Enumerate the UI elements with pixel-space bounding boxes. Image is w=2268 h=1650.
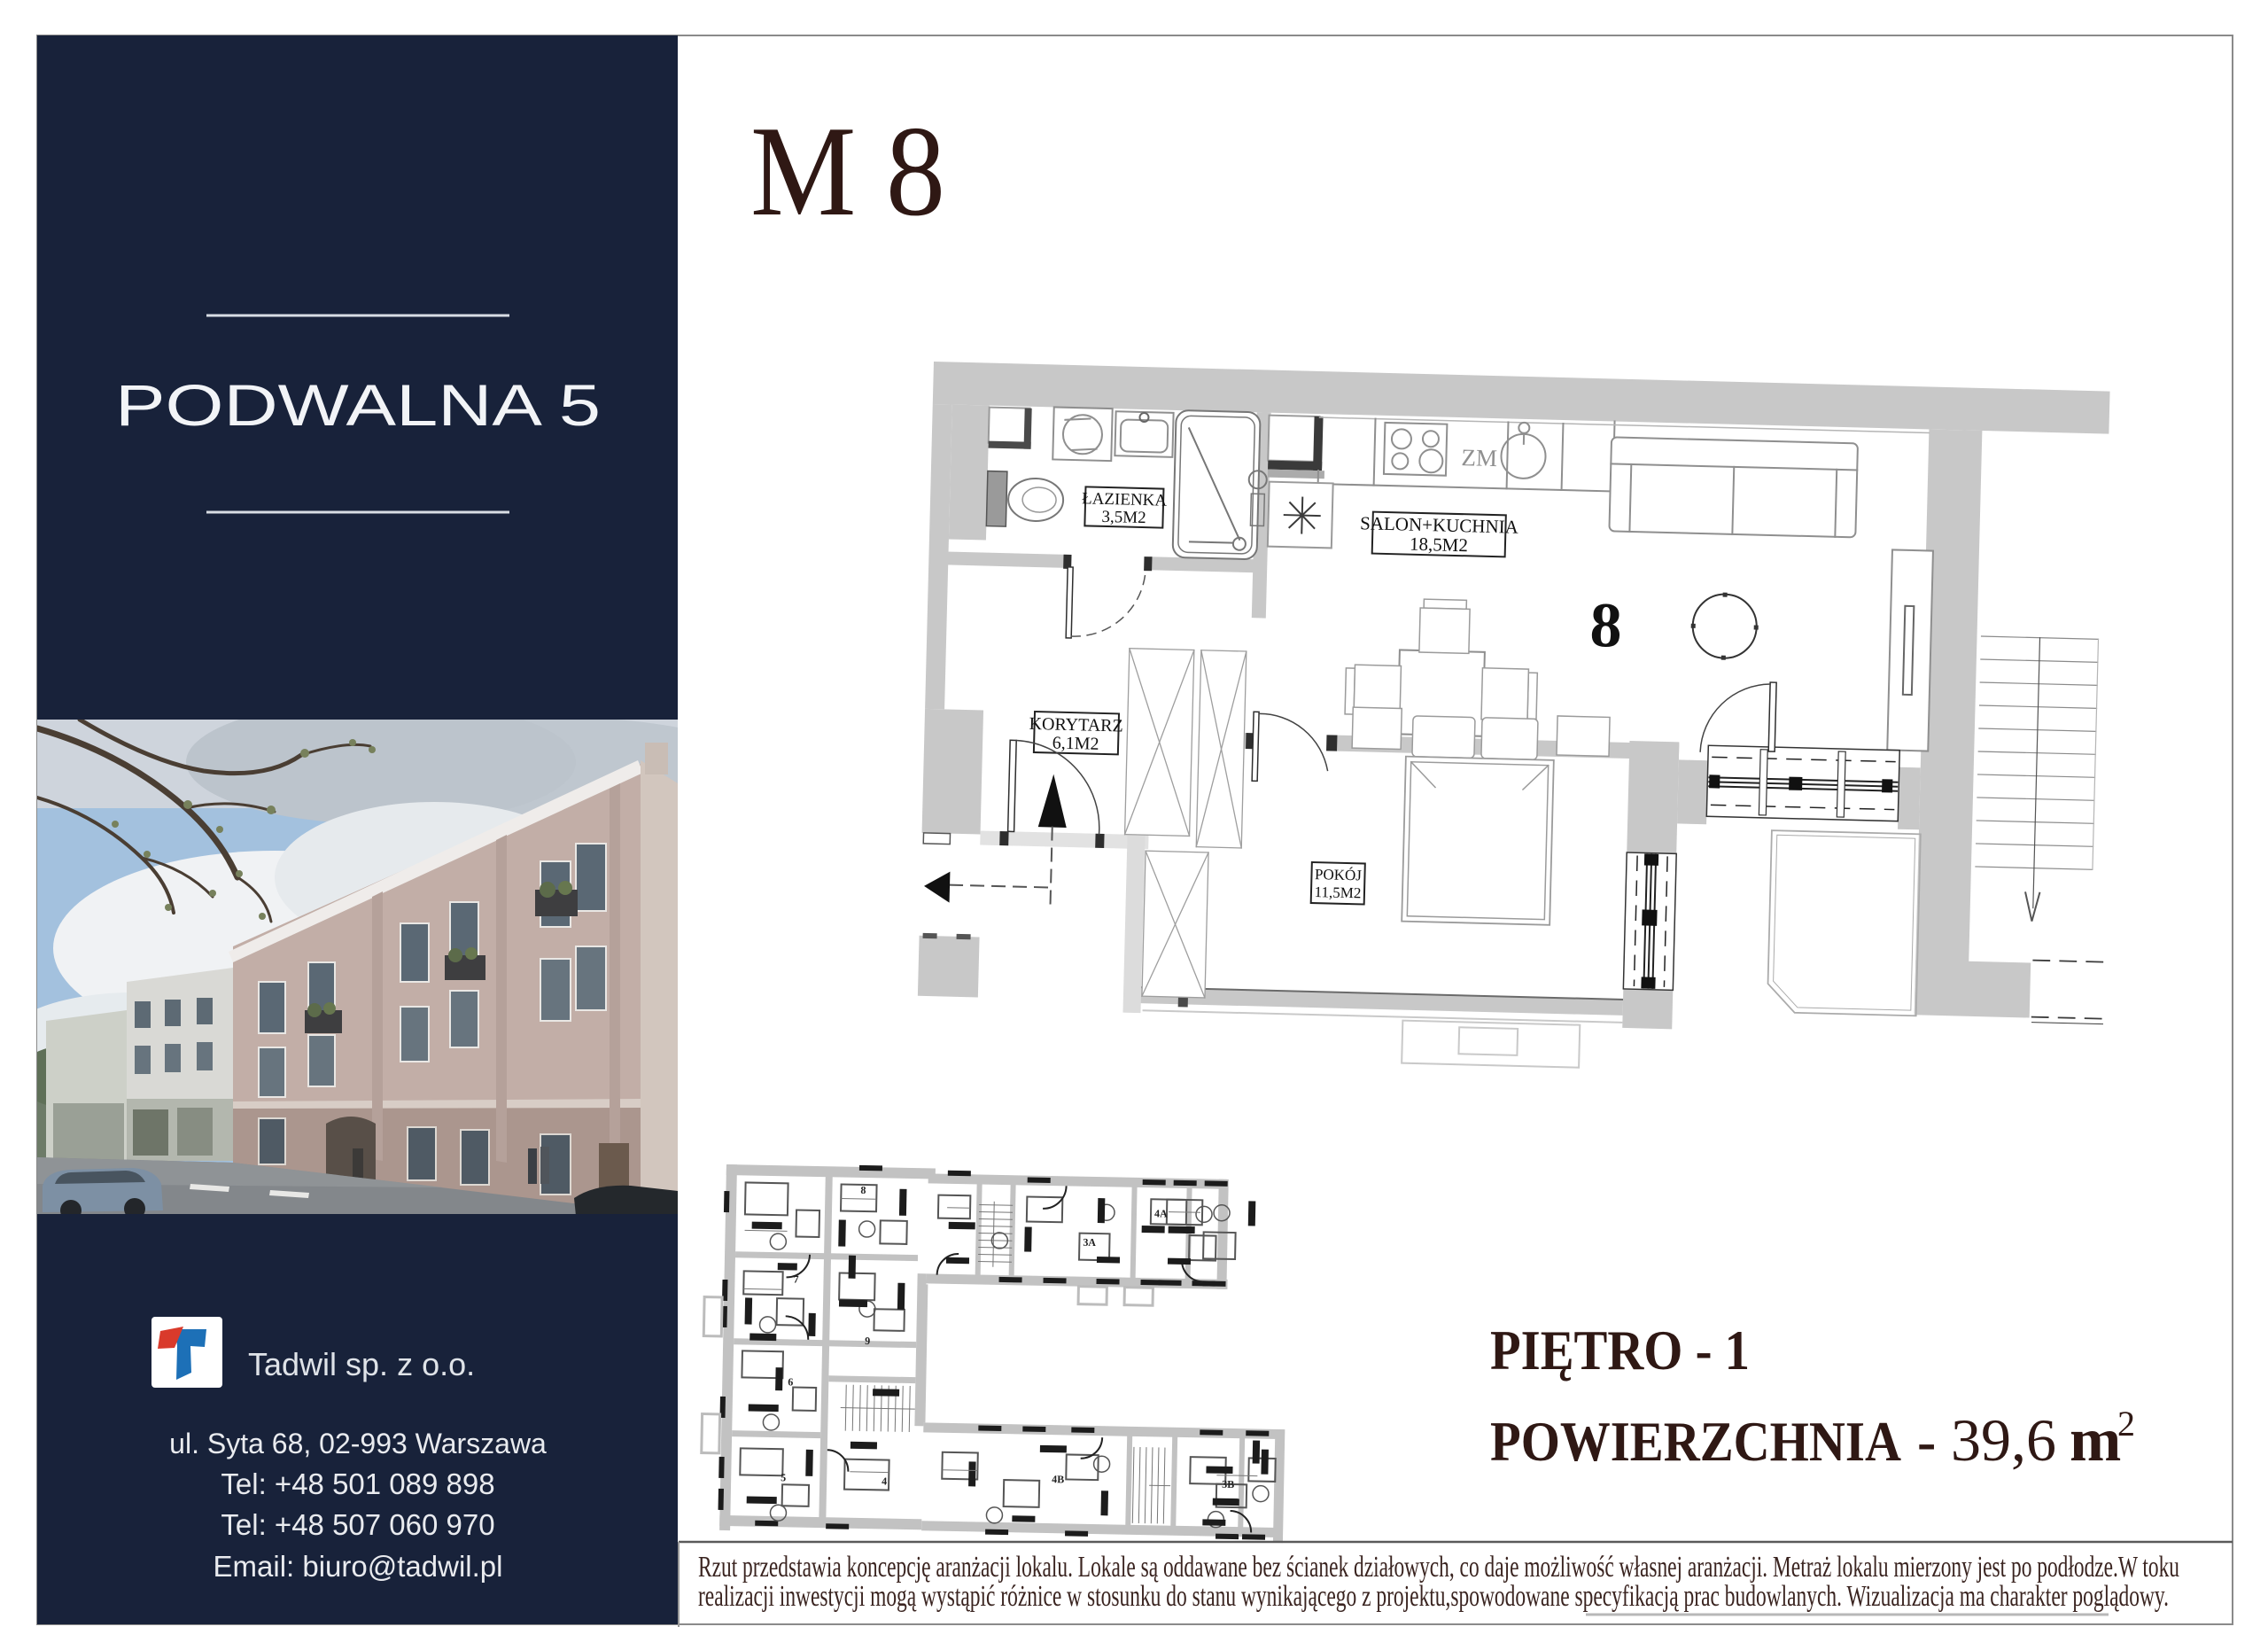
svg-text:realizacji inwestycji mogą wys: realizacji inwestycji mogą wystąpić różn… <box>698 1580 2169 1613</box>
svg-text:39,6: 39,6 <box>1951 1406 2056 1474</box>
svg-text:Rzut przedstawia koncepcję ara: Rzut przedstawia koncepcję aranżacji lok… <box>698 1551 2179 1584</box>
svg-text:4A: 4A <box>1154 1207 1168 1219</box>
svg-text:ZM: ZM <box>1461 444 1497 471</box>
svg-text:Tadwil sp. z o.o.: Tadwil sp. z o.o. <box>248 1346 475 1382</box>
svg-text:6: 6 <box>788 1375 793 1388</box>
svg-text:Tel: +48 507 060 970: Tel: +48 507 060 970 <box>221 1508 494 1541</box>
svg-text:9: 9 <box>865 1335 870 1347</box>
svg-text:3A: 3A <box>1083 1236 1096 1249</box>
svg-text:Email: biuro@tadwil.pl: Email: biuro@tadwil.pl <box>214 1550 503 1583</box>
svg-text:m: m <box>2070 1406 2121 1475</box>
svg-text:5: 5 <box>781 1471 786 1483</box>
svg-text:ul. Syta 68, 02-993 Warszawa: ul. Syta 68, 02-993 Warszawa <box>169 1428 547 1459</box>
svg-text:M 8: M 8 <box>750 99 945 243</box>
svg-text:11,5M2: 11,5M2 <box>1314 883 1361 901</box>
svg-text:POKÓJ: POKÓJ <box>1315 866 1363 883</box>
svg-text:ŁAZIENKA: ŁAZIENKA <box>1082 489 1168 510</box>
svg-text:Tel: +48 501 089 898: Tel: +48 501 089 898 <box>221 1467 494 1500</box>
svg-text:8: 8 <box>860 1184 866 1196</box>
svg-text:PIĘTRO - 1: PIĘTRO - 1 <box>1490 1319 1750 1381</box>
svg-text:3,5M2: 3,5M2 <box>1101 508 1146 527</box>
svg-text:7: 7 <box>793 1273 798 1285</box>
svg-text:2: 2 <box>2117 1404 2135 1444</box>
svg-text:PODWALNA 5: PODWALNA 5 <box>115 372 601 438</box>
svg-text:-: - <box>1917 1410 1936 1473</box>
svg-text:3B: 3B <box>1222 1478 1234 1490</box>
svg-text:4: 4 <box>882 1475 887 1487</box>
svg-text:8: 8 <box>1589 589 1623 661</box>
svg-text:18,5M2: 18,5M2 <box>1410 533 1469 556</box>
svg-text:6,1M2: 6,1M2 <box>1052 734 1099 754</box>
svg-text:POWIERZCHNIA: POWIERZCHNIA <box>1490 1410 1901 1473</box>
svg-text:KORYTARZ: KORYTARZ <box>1029 714 1123 736</box>
svg-text:4B: 4B <box>1052 1473 1064 1485</box>
